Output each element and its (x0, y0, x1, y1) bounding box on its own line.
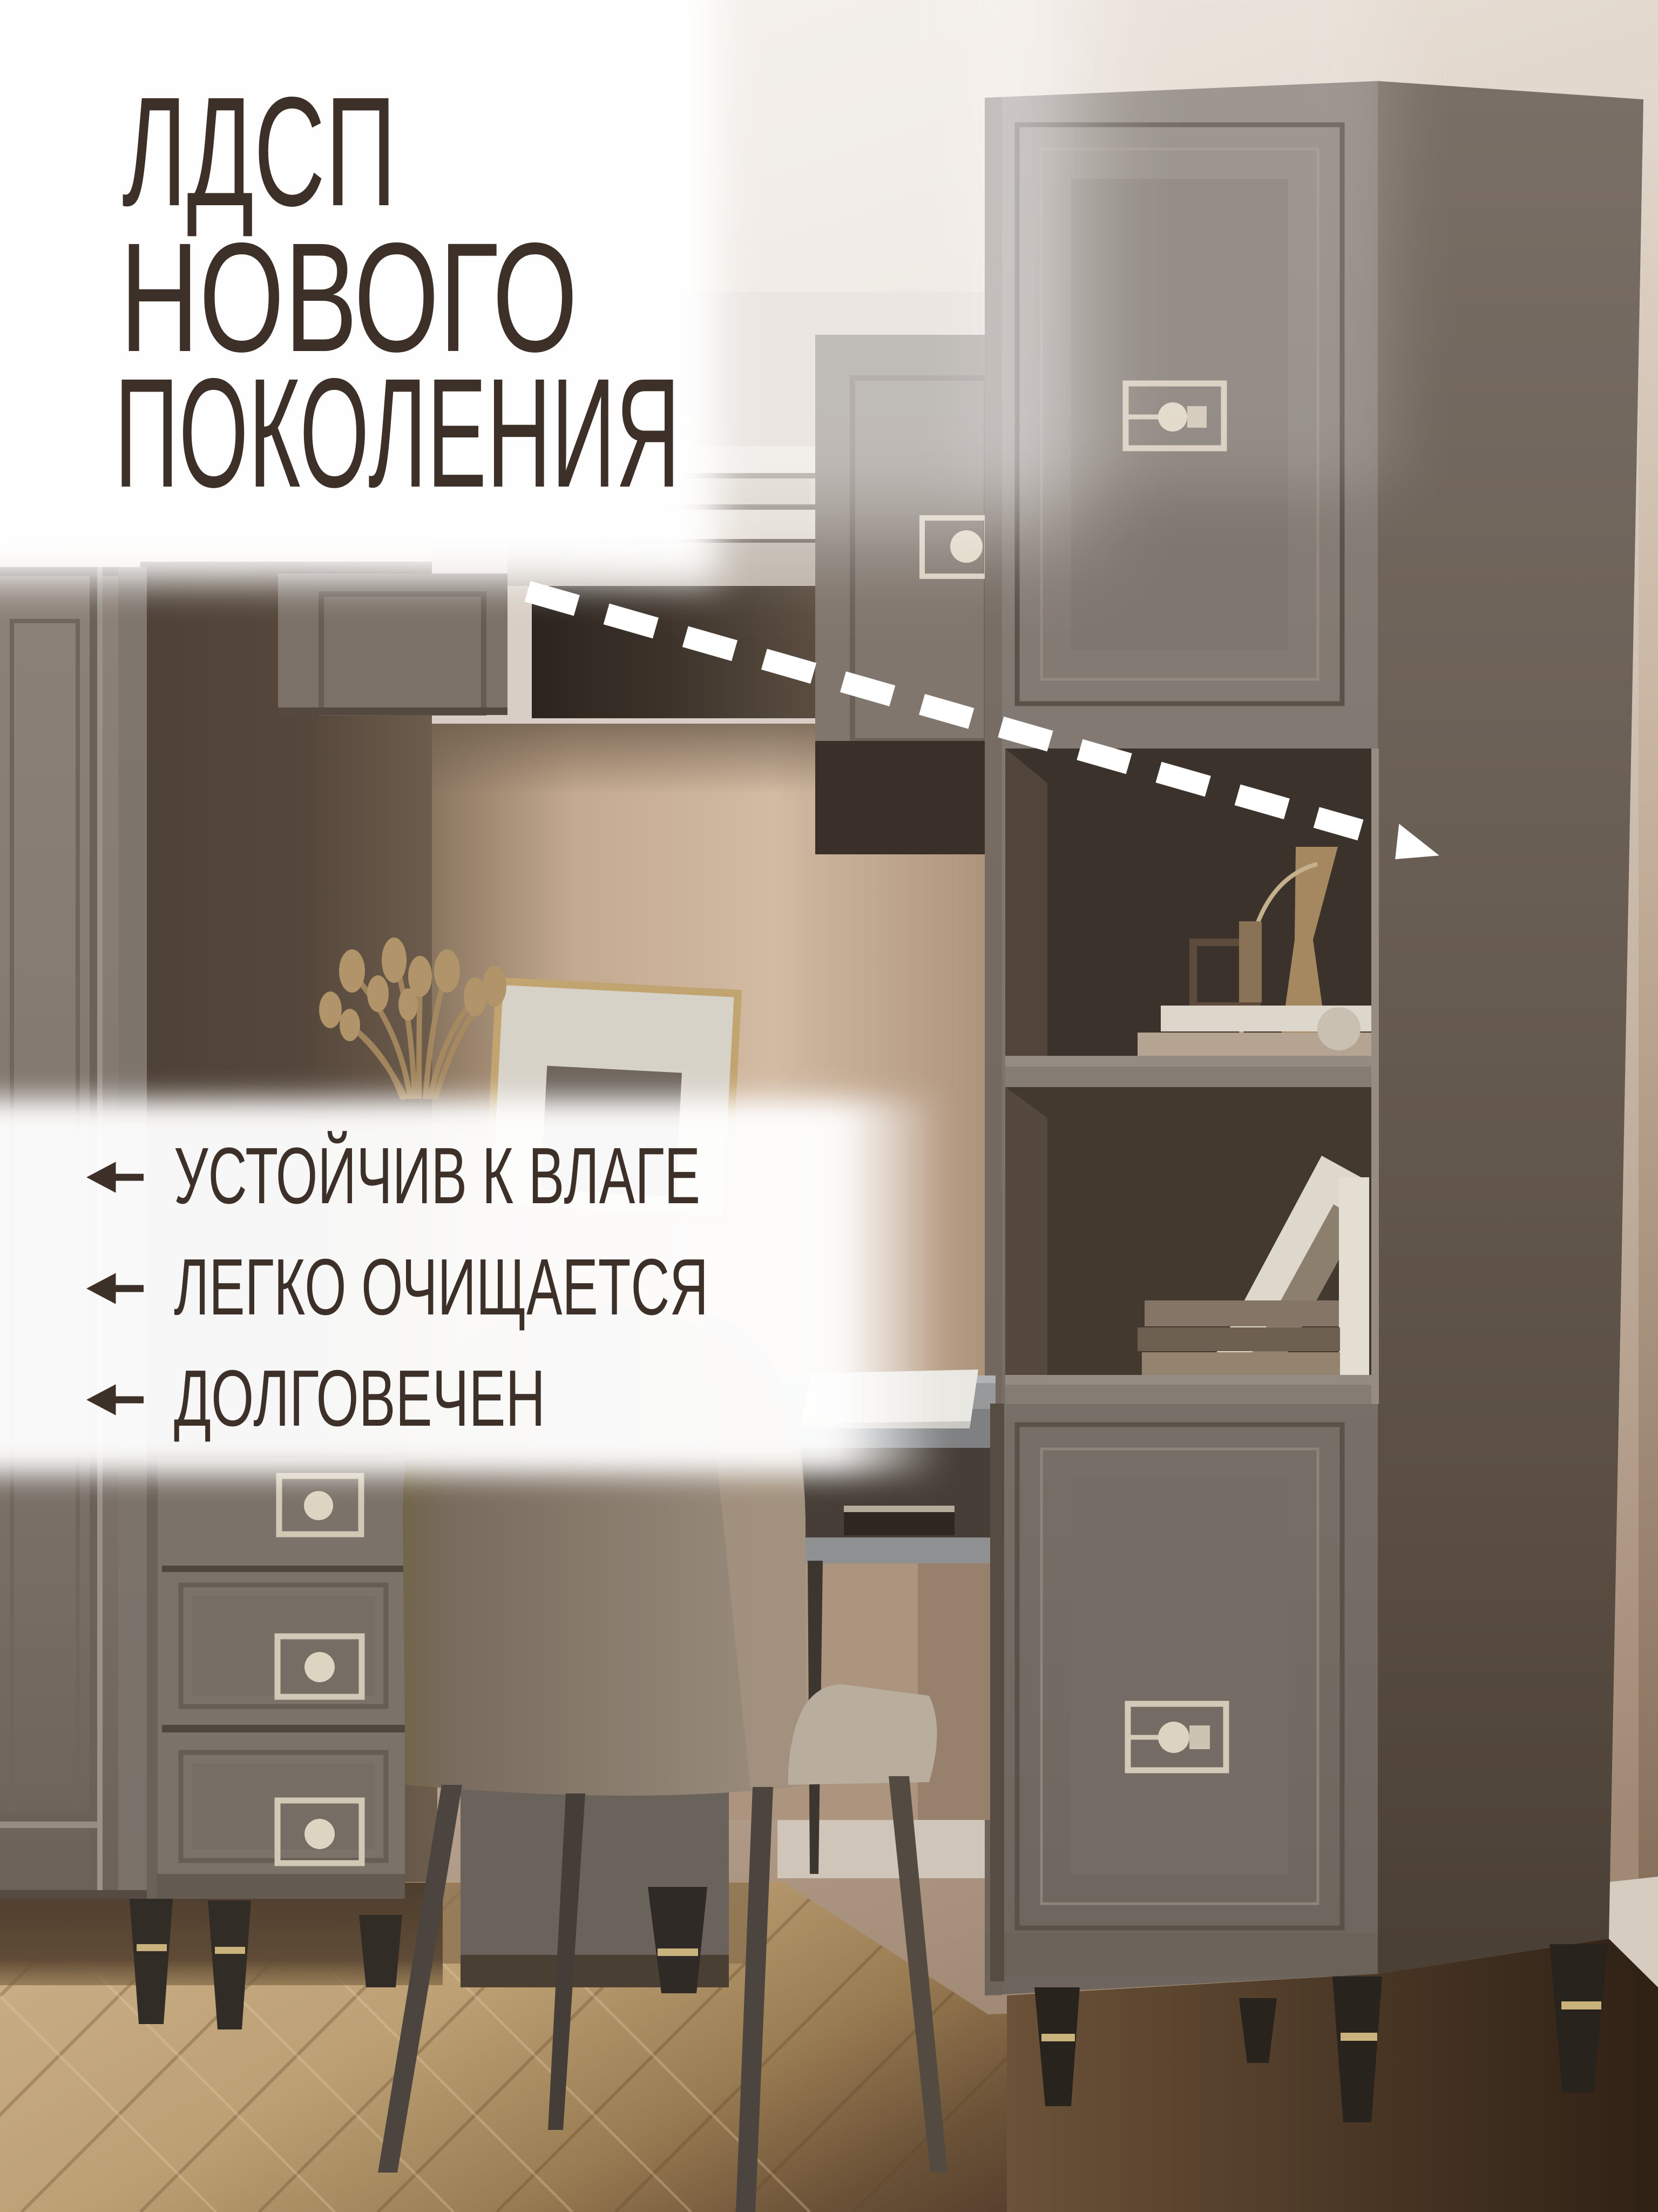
svg-text:ЛЕГКО ОЧИЩАЕТСЯ: ЛЕГКО ОЧИЩАЕТСЯ (174, 1243, 708, 1332)
svg-text:УСТОЙЧИВ К ВЛАГЕ: УСТОЙЧИВ К ВЛАГЕ (174, 1131, 700, 1220)
svg-text:ДОЛГОВЕЧЕН: ДОЛГОВЕЧЕН (174, 1354, 545, 1443)
svg-text:ПОКОЛЕНИЯ: ПОКОЛЕНИЯ (114, 346, 680, 520)
